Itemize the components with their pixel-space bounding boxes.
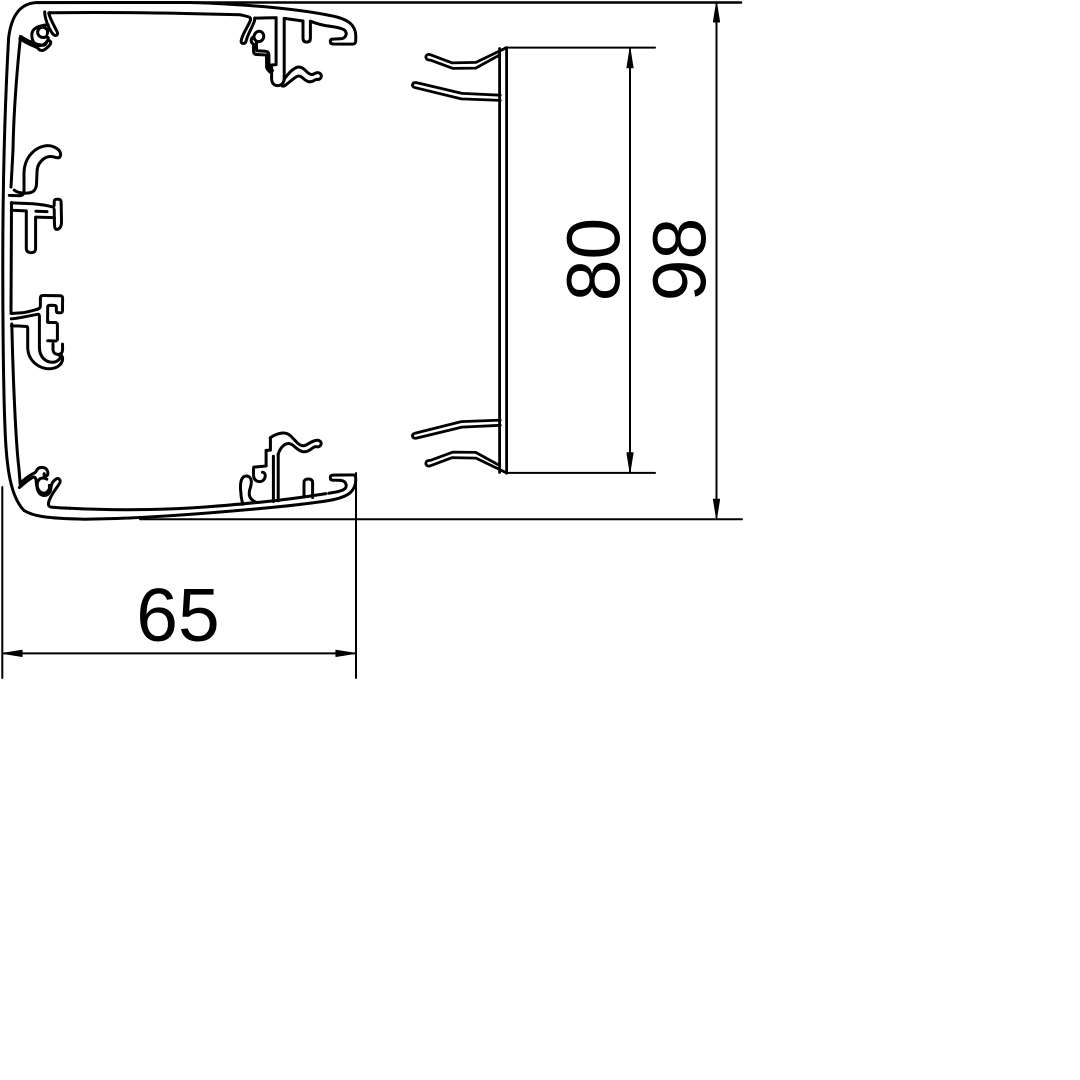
svg-text:65: 65	[136, 573, 219, 657]
svg-text:80: 80	[552, 218, 636, 301]
svg-text:98: 98	[638, 218, 722, 301]
